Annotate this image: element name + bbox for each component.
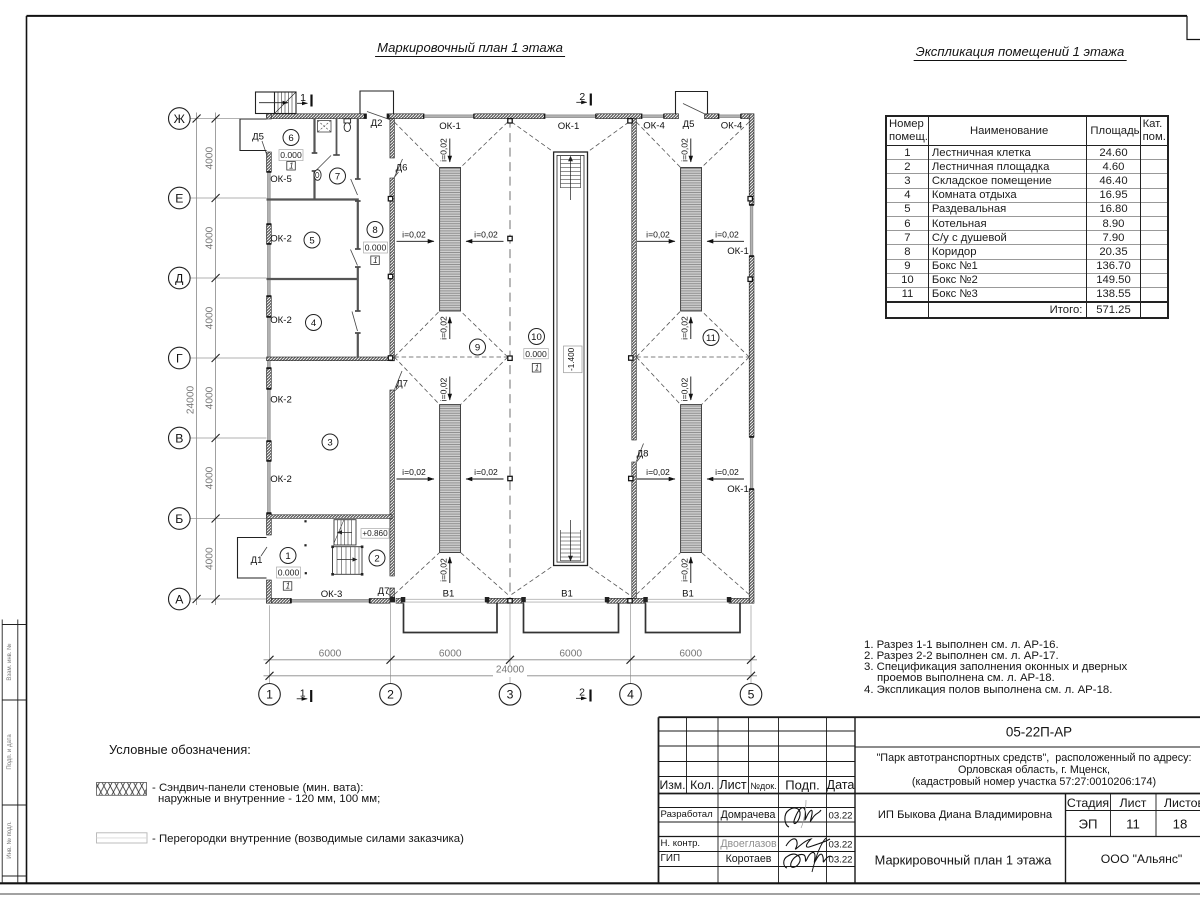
svg-text:i=0,02: i=0,02 xyxy=(646,467,670,477)
svg-text:ОК-2: ОК-2 xyxy=(270,395,292,406)
svg-text:11: 11 xyxy=(706,333,716,344)
svg-text:2: 2 xyxy=(579,91,585,103)
svg-text:1: 1 xyxy=(285,551,290,562)
svg-text:6000: 6000 xyxy=(319,648,342,659)
svg-text:ОК-4: ОК-4 xyxy=(643,121,665,132)
svg-text:i=0,02: i=0,02 xyxy=(474,467,498,477)
svg-text:5: 5 xyxy=(309,235,314,246)
svg-text:ОК-1: ОК-1 xyxy=(727,246,749,257)
svg-text:7: 7 xyxy=(335,171,340,182)
svg-text:Ж: Ж xyxy=(174,112,186,126)
svg-text:+0.860: +0.860 xyxy=(362,529,388,538)
svg-text:Д2: Д2 xyxy=(371,118,383,129)
svg-text:24000: 24000 xyxy=(496,664,525,675)
svg-text:Б: Б xyxy=(175,512,183,526)
svg-text:4000: 4000 xyxy=(205,147,216,170)
svg-text:Д8: Д8 xyxy=(637,449,649,460)
svg-text:i=0,02: i=0,02 xyxy=(679,377,689,401)
svg-text:i=0,02: i=0,02 xyxy=(438,138,448,162)
svg-text:Инв. № подл.: Инв. № подл. xyxy=(6,821,13,859)
svg-text:1: 1 xyxy=(300,92,306,104)
svg-text:i=0,02: i=0,02 xyxy=(679,558,689,582)
svg-text:i=0,02: i=0,02 xyxy=(679,316,689,340)
svg-text:6000: 6000 xyxy=(559,648,582,659)
svg-text:4000: 4000 xyxy=(205,306,216,329)
svg-text:i=0,02: i=0,02 xyxy=(438,558,448,582)
svg-text:i=0,02: i=0,02 xyxy=(715,467,739,477)
svg-text:-1.400: -1.400 xyxy=(567,347,576,371)
svg-text:6000: 6000 xyxy=(439,648,462,659)
svg-text:1: 1 xyxy=(373,256,377,265)
svg-text:ОК-1: ОК-1 xyxy=(727,484,749,495)
svg-text:Г: Г xyxy=(176,351,183,365)
svg-text:4000: 4000 xyxy=(205,226,216,249)
svg-text:1: 1 xyxy=(289,161,293,170)
svg-text:24000: 24000 xyxy=(186,386,197,415)
svg-text:i=0,02: i=0,02 xyxy=(402,467,426,477)
svg-text:ОК-2: ОК-2 xyxy=(270,315,292,326)
svg-text:Д7: Д7 xyxy=(396,379,408,390)
svg-text:4000: 4000 xyxy=(205,466,216,489)
svg-text:4000: 4000 xyxy=(205,386,216,409)
svg-text:4: 4 xyxy=(311,318,317,329)
svg-text:2: 2 xyxy=(387,688,394,702)
svg-text:0.000: 0.000 xyxy=(280,150,302,160)
svg-text:0.000: 0.000 xyxy=(525,349,547,359)
svg-text:1: 1 xyxy=(300,688,306,700)
svg-text:10: 10 xyxy=(531,332,542,343)
svg-text:8: 8 xyxy=(372,225,377,236)
svg-text:3: 3 xyxy=(507,688,514,702)
svg-text:В1: В1 xyxy=(443,589,455,600)
svg-text:3: 3 xyxy=(327,437,332,448)
svg-text:В1: В1 xyxy=(561,589,573,600)
svg-text:i=0,02: i=0,02 xyxy=(715,229,739,239)
svg-text:0.000: 0.000 xyxy=(278,568,300,578)
svg-text:6000: 6000 xyxy=(679,648,702,659)
svg-text:4000: 4000 xyxy=(205,547,216,570)
svg-text:i=0,02: i=0,02 xyxy=(474,229,498,239)
svg-text:i=0,02: i=0,02 xyxy=(438,316,448,340)
svg-text:i=0,02: i=0,02 xyxy=(438,377,448,401)
svg-text:1: 1 xyxy=(266,688,273,702)
svg-text:1: 1 xyxy=(286,582,290,591)
svg-text:ОК-4: ОК-4 xyxy=(721,121,743,132)
svg-text:Д5: Д5 xyxy=(683,119,695,130)
svg-text:Подп. и дата: Подп. и дата xyxy=(7,734,13,770)
svg-text:6: 6 xyxy=(288,133,293,144)
svg-text:ОК-3: ОК-3 xyxy=(321,589,343,600)
svg-text:Взам. инв. №: Взам. инв. № xyxy=(6,643,13,680)
svg-text:Д1: Д1 xyxy=(251,555,263,566)
svg-text:ОК-5: ОК-5 xyxy=(270,174,292,185)
svg-text:4: 4 xyxy=(627,688,634,702)
svg-text:i=0,02: i=0,02 xyxy=(402,229,426,239)
svg-text:2: 2 xyxy=(374,553,379,564)
svg-text:i=0,02: i=0,02 xyxy=(679,138,689,162)
svg-text:Д: Д xyxy=(175,271,184,285)
svg-text:i=0,02: i=0,02 xyxy=(646,229,670,239)
svg-text:ОК-1: ОК-1 xyxy=(558,121,580,132)
svg-text:В1: В1 xyxy=(682,589,694,600)
svg-text:Е: Е xyxy=(175,191,183,205)
svg-text:5: 5 xyxy=(748,688,755,702)
svg-text:Д6: Д6 xyxy=(396,163,408,174)
svg-text:1: 1 xyxy=(535,363,539,372)
svg-text:2: 2 xyxy=(579,687,585,699)
svg-text:ОК-2: ОК-2 xyxy=(270,474,292,485)
svg-text:Д7: Д7 xyxy=(378,586,390,597)
svg-text:В: В xyxy=(175,431,183,445)
svg-text:А: А xyxy=(175,592,184,606)
svg-text:Д5: Д5 xyxy=(252,132,264,143)
svg-text:0.000: 0.000 xyxy=(365,243,387,253)
svg-text:ОК-1: ОК-1 xyxy=(439,121,461,132)
svg-text:9: 9 xyxy=(475,342,480,353)
svg-text:ОК-2: ОК-2 xyxy=(270,234,292,245)
